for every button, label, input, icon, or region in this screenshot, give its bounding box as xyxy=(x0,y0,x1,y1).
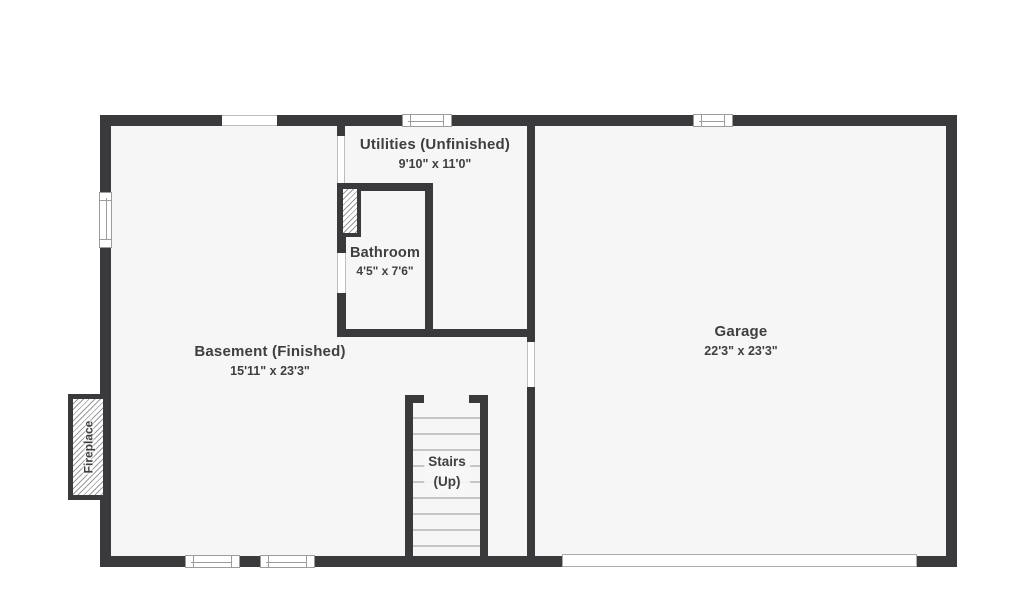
wall-bathroom-right xyxy=(425,183,433,337)
wall-stairs-top-right xyxy=(469,395,488,403)
wall-utilities-stub xyxy=(337,121,345,136)
room-name-utilities: Utilities (Unfinished) xyxy=(360,136,510,153)
wall-utilities-south xyxy=(337,329,535,337)
wall-garage-lower xyxy=(527,387,535,567)
room-label-utilities: Utilities (Unfinished) 9'10" x 11'0" xyxy=(360,136,510,171)
doorway-bathroom-opening xyxy=(337,253,346,293)
room-name-garage: Garage xyxy=(704,323,777,340)
room-dims-utilities: 9'10" x 11'0" xyxy=(360,157,510,171)
doorway-top-opening xyxy=(222,115,277,126)
window-top-garage xyxy=(693,114,733,127)
room-name-basement: Basement (Finished) xyxy=(194,343,345,360)
window-bottom-basement-2 xyxy=(260,555,315,568)
wall-stairs-right xyxy=(480,395,488,560)
room-label-stairs: Stairs (Up) xyxy=(424,451,470,492)
room-name-stairs: Stairs xyxy=(428,452,466,472)
fireplace: Fireplace xyxy=(68,394,108,500)
doorway-garage-opening xyxy=(527,342,535,387)
garage-door-opening xyxy=(562,554,917,567)
room-dims-garage: 22'3" x 23'3" xyxy=(704,344,777,358)
window-left-basement xyxy=(99,192,112,248)
room-label-basement: Basement (Finished) 15'11" x 23'3" xyxy=(194,343,345,378)
room-dims-basement: 15'11" x 23'3" xyxy=(194,364,345,378)
doorway-utilities-opening xyxy=(337,136,345,183)
wall-stairs-top-left xyxy=(405,395,424,403)
shower-fixture xyxy=(339,185,361,237)
room-label-bathroom: Bathroom 4'5" x 7'6" xyxy=(350,245,420,278)
window-top-utilities xyxy=(402,114,452,127)
room-name-bathroom: Bathroom xyxy=(350,245,420,261)
floorplan-canvas: Fireplace Utilities (Unfinished) 9'10" x… xyxy=(0,0,1024,615)
room-label-garage: Garage 22'3" x 23'3" xyxy=(704,323,777,358)
fireplace-label: Fireplace xyxy=(81,421,95,474)
room-direction-stairs: (Up) xyxy=(428,472,466,492)
wall-stairs-left xyxy=(405,395,413,560)
room-dims-bathroom: 4'5" x 7'6" xyxy=(350,264,420,278)
wall-right xyxy=(946,115,957,567)
wall-garage-upper xyxy=(527,121,535,342)
window-bottom-basement-1 xyxy=(185,555,240,568)
